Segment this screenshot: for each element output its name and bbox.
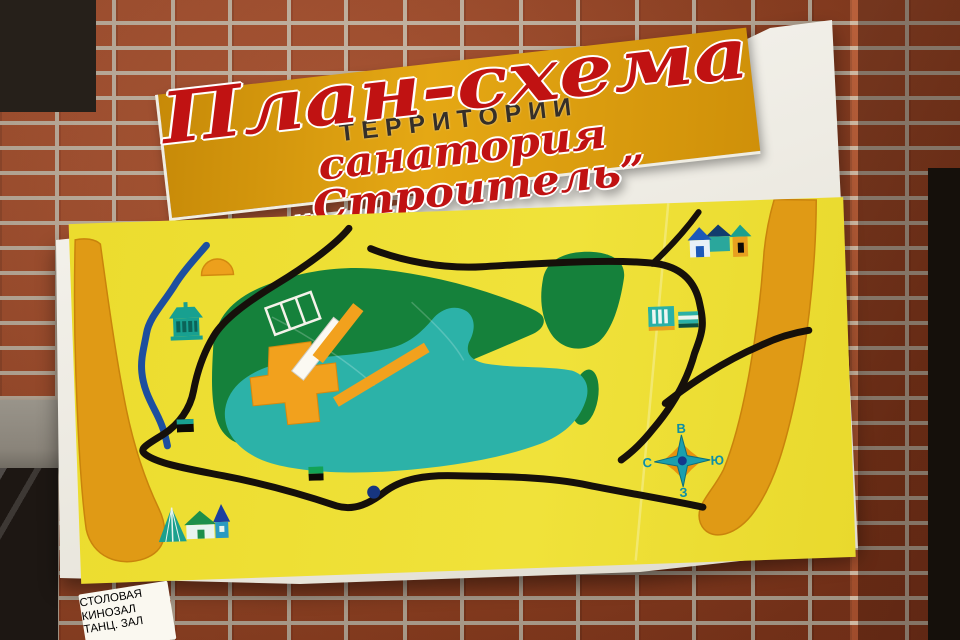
photo-scene: План-схема ТЕРРИТОРИИ санатория „Строите… (0, 0, 960, 640)
beach (201, 258, 234, 275)
druzhba-icons (648, 301, 699, 331)
mineral-well-icon (308, 466, 323, 481)
camp-salut-icons (687, 222, 752, 260)
gazebo-icon (167, 301, 205, 348)
compass-left: С (642, 455, 653, 470)
camp-chaika-icons (156, 498, 231, 545)
pump-station-icon (177, 419, 194, 433)
sheet-seam (623, 203, 680, 560)
map-panel: СТОЛОВАЯ КИНОЗАЛ ТАНЦ. ЗАЛ БАЛЬНЕО- ГРЯЗ… (69, 197, 856, 584)
compass-rose: В С Ю З (639, 419, 726, 500)
compass-right: Ю (710, 452, 724, 467)
compass-bottom: З (679, 485, 688, 500)
banner: План-схема ТЕРРИТОРИИ санатория „Строите… (155, 28, 761, 222)
compass-top: В (676, 421, 686, 436)
